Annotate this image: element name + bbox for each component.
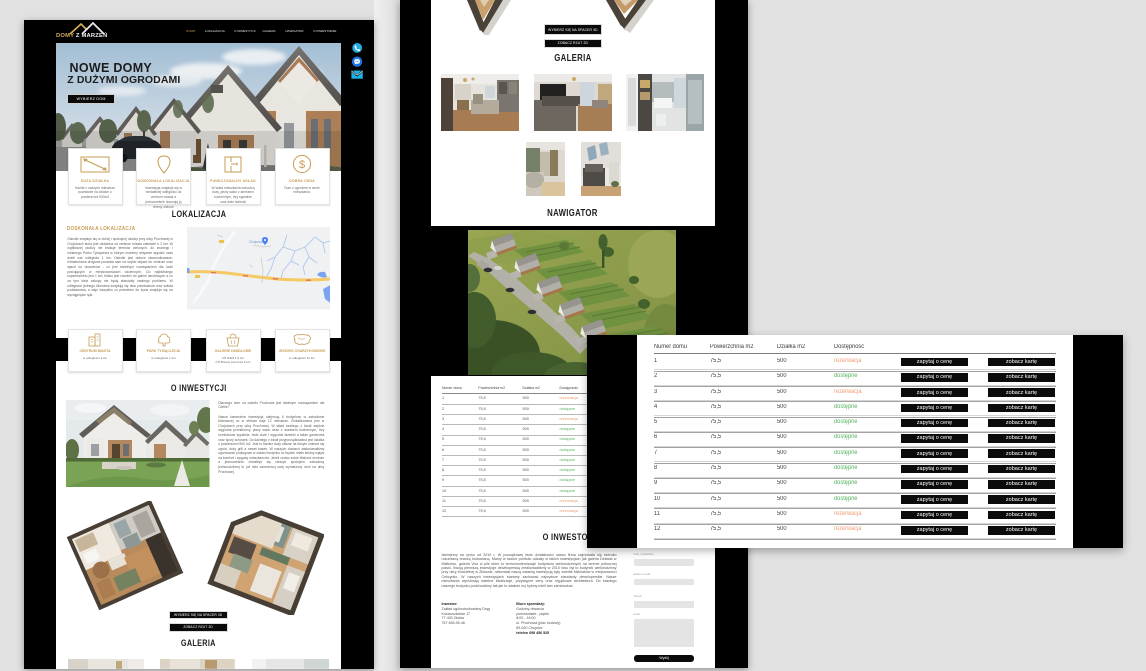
svg-text:Chojnice: Chojnice xyxy=(249,240,263,244)
svg-text:$: $ xyxy=(299,159,305,171)
